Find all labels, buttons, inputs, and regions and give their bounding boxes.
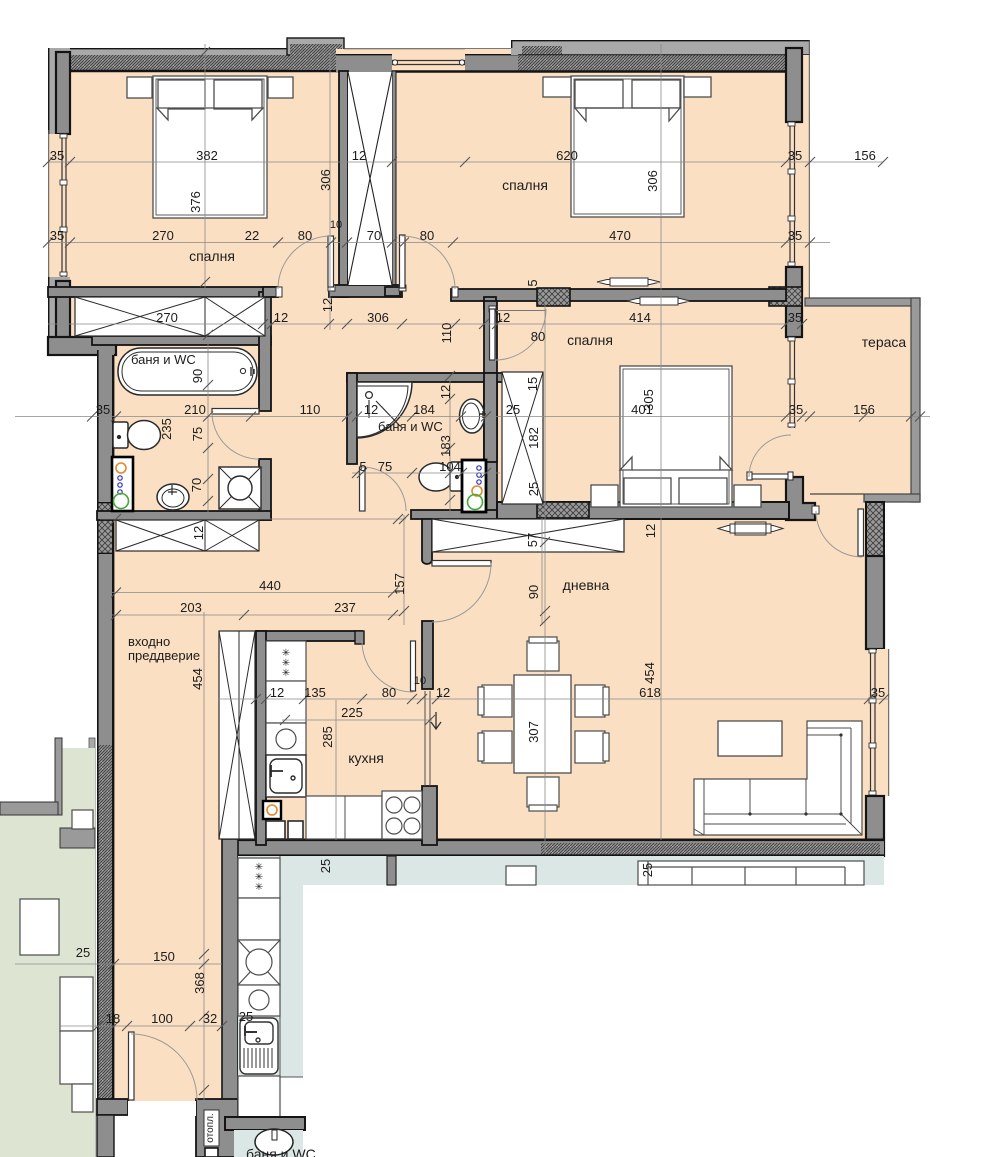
svg-text:12: 12: [274, 310, 288, 325]
svg-text:470: 470: [609, 228, 631, 243]
svg-text:80: 80: [531, 329, 545, 344]
svg-text:35: 35: [96, 402, 110, 417]
svg-text:12: 12: [270, 685, 284, 700]
svg-text:35: 35: [871, 685, 885, 700]
svg-text:618: 618: [639, 685, 661, 700]
svg-text:✳: ✳: [282, 668, 290, 679]
svg-text:620: 620: [556, 148, 578, 163]
svg-text:270: 270: [156, 310, 178, 325]
svg-text:12: 12: [320, 298, 335, 312]
svg-text:баня и WC: баня и WC: [131, 352, 196, 367]
svg-text:157: 157: [392, 573, 407, 595]
svg-text:10: 10: [414, 675, 426, 687]
svg-text:12: 12: [438, 385, 453, 399]
svg-text:25: 25: [640, 863, 655, 877]
svg-text:баня и WC: баня и WC: [246, 1146, 316, 1157]
svg-text:35: 35: [50, 228, 64, 243]
svg-text:307: 307: [526, 721, 541, 743]
svg-text:440: 440: [259, 578, 281, 593]
svg-text:80: 80: [420, 228, 434, 243]
svg-text:35: 35: [50, 148, 64, 163]
svg-text:отопл.: отопл.: [205, 1113, 216, 1142]
svg-text:306: 306: [318, 169, 333, 191]
svg-text:70: 70: [189, 478, 204, 492]
svg-text:183: 183: [438, 435, 453, 457]
svg-text:35: 35: [789, 402, 803, 417]
svg-text:270: 270: [152, 228, 174, 243]
svg-text:80: 80: [382, 685, 396, 700]
svg-text:входно: входно: [128, 634, 170, 649]
svg-text:156: 156: [853, 402, 875, 417]
svg-text:12: 12: [364, 402, 378, 417]
svg-text:237: 237: [334, 600, 356, 615]
svg-text:382: 382: [196, 148, 218, 163]
svg-text:285: 285: [320, 726, 335, 748]
svg-text:дневна: дневна: [563, 577, 610, 593]
svg-text:210: 210: [184, 402, 206, 417]
svg-text:184: 184: [413, 402, 435, 417]
svg-text:25: 25: [506, 402, 520, 417]
svg-text:25: 25: [526, 482, 541, 496]
svg-text:306: 306: [367, 310, 389, 325]
svg-text:35: 35: [788, 148, 802, 163]
svg-text:150: 150: [153, 949, 175, 964]
svg-text:спалня: спалня: [189, 248, 235, 264]
svg-text:5: 5: [525, 279, 540, 286]
svg-text:75: 75: [190, 427, 205, 441]
svg-text:80: 80: [298, 228, 312, 243]
svg-text:25: 25: [318, 859, 333, 873]
svg-text:100: 100: [151, 1011, 173, 1026]
svg-text:25: 25: [239, 1009, 253, 1024]
svg-text:✳: ✳: [255, 882, 263, 893]
svg-text:кухня: кухня: [348, 750, 384, 766]
svg-text:104: 104: [439, 459, 461, 474]
svg-text:25: 25: [76, 945, 90, 960]
svg-text:454: 454: [190, 668, 205, 690]
svg-text:110: 110: [300, 402, 321, 417]
svg-text:305: 305: [641, 389, 656, 411]
svg-text:90: 90: [190, 369, 205, 383]
svg-text:182: 182: [526, 427, 541, 449]
svg-text:18: 18: [106, 1011, 120, 1026]
svg-text:12: 12: [643, 524, 658, 538]
svg-text:35: 35: [788, 310, 802, 325]
svg-text:110: 110: [439, 323, 454, 344]
svg-text:12: 12: [352, 148, 366, 163]
svg-text:35: 35: [788, 228, 802, 243]
svg-text:70: 70: [367, 228, 381, 243]
svg-text:15: 15: [525, 377, 540, 391]
svg-text:156: 156: [854, 148, 876, 163]
svg-text:135: 135: [304, 685, 326, 700]
svg-text:баня и WC: баня и WC: [378, 419, 443, 434]
svg-text:225: 225: [341, 705, 363, 720]
svg-text:306: 306: [645, 170, 660, 192]
svg-text:спалня: спалня: [567, 332, 613, 348]
svg-text:тераса: тераса: [862, 334, 907, 350]
svg-text:203: 203: [180, 600, 202, 615]
svg-text:235: 235: [159, 418, 174, 440]
svg-text:преддверие: преддверие: [128, 648, 200, 663]
svg-text:368: 368: [192, 972, 207, 994]
svg-text:12: 12: [496, 310, 510, 325]
svg-text:75: 75: [378, 459, 392, 474]
svg-text:22: 22: [245, 228, 259, 243]
svg-text:414: 414: [629, 310, 651, 325]
svg-text:спалня: спалня: [502, 177, 548, 193]
svg-text:32: 32: [203, 1011, 217, 1026]
svg-text:454: 454: [642, 662, 657, 684]
svg-text:90: 90: [526, 585, 541, 599]
svg-text:10: 10: [330, 219, 342, 231]
svg-text:57: 57: [525, 533, 540, 547]
svg-text:376: 376: [188, 191, 203, 213]
svg-text:12: 12: [191, 526, 206, 540]
svg-text:12: 12: [436, 685, 450, 700]
svg-text:5: 5: [359, 459, 366, 474]
